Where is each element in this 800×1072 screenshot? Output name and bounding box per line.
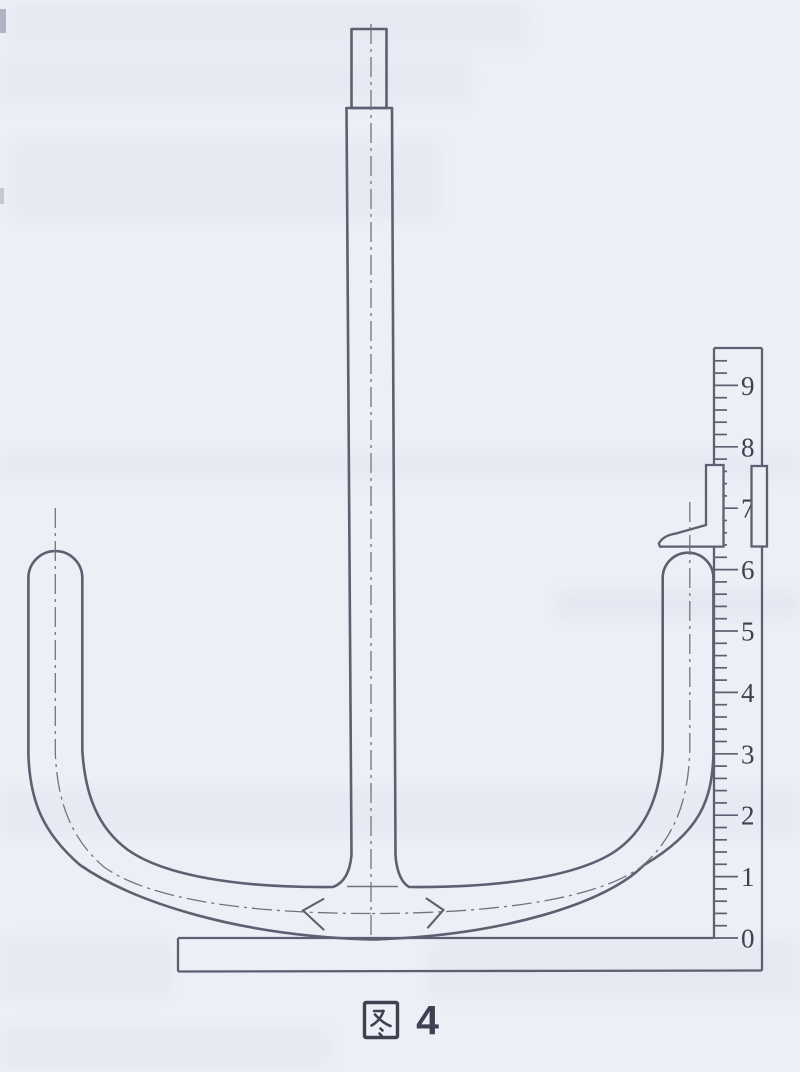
- anchor-technical-drawing: 0123456789: [0, 0, 800, 1072]
- ruler-number: 4: [741, 678, 755, 708]
- ruler-slider: [659, 465, 767, 547]
- ruler-number: 6: [741, 555, 755, 585]
- ruler-number: 8: [741, 432, 755, 462]
- figure-caption: 4: [0, 998, 800, 1042]
- ruler-number: 0: [741, 924, 755, 954]
- anchor-stock-outline: [352, 29, 387, 108]
- ruler-number: 3: [741, 739, 755, 769]
- scanned-page: 0123456789: [0, 0, 800, 1072]
- base-plate: [178, 938, 762, 972]
- centerlines: [55, 24, 690, 938]
- ruler-number: 1: [741, 862, 755, 892]
- ruler-number: 9: [741, 371, 755, 401]
- right-arm-centerline: [371, 502, 690, 914]
- left-arm-centerline: [55, 508, 371, 914]
- caption-character-tu: [361, 998, 401, 1042]
- caption-number: 4: [416, 1000, 439, 1041]
- ruler-ticks: 0123456789: [714, 361, 755, 954]
- ruler-number: 2: [741, 801, 755, 831]
- right-fluke-tip-cap: [663, 553, 714, 578]
- left-arm-inner-edge-and-shank-left: [82, 108, 351, 887]
- right-arm-inner-edge-and-shank-right: [392, 108, 663, 887]
- left-direction-arrowhead: [303, 899, 324, 930]
- slider-right-clamp: [752, 466, 768, 547]
- tu-inner-stroke: [381, 1029, 383, 1031]
- ruler-number: 5: [741, 617, 755, 647]
- tu-inner-stroke: [380, 1034, 382, 1036]
- plate-bottom-edge: [178, 971, 762, 972]
- slider-jaw-with-scriber-blade: [659, 465, 724, 547]
- height-ruler: 0123456789: [714, 348, 762, 971]
